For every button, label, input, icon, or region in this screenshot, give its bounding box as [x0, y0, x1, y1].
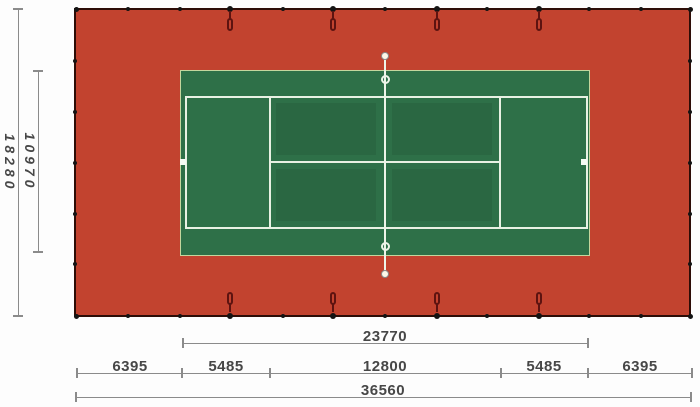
fence-post: [688, 161, 692, 165]
fence-post: [688, 59, 692, 63]
fence-post: [688, 314, 693, 319]
dimension-label-total-length: 36560: [361, 383, 405, 398]
dimension-label-court-length: 23770: [363, 329, 407, 344]
dim-tick: [13, 315, 23, 317]
dimension-line-total-height: [18, 9, 19, 317]
center-mark-right: [581, 159, 587, 165]
fence-tie-stem: [538, 304, 540, 312]
fence-tie-stem: [436, 304, 438, 312]
dim-tick: [690, 392, 692, 402]
fence-post: [281, 314, 285, 318]
fence-tie-stem: [538, 11, 540, 19]
dim-tick: [269, 368, 271, 378]
dimension-label-backcourt-right: 5485: [526, 359, 561, 374]
fence-post: [74, 314, 79, 319]
fence-tie-ring: [330, 18, 336, 31]
center-mark-left: [180, 159, 186, 165]
fence-post: [330, 313, 336, 319]
tennis-court-plan: 18280 10970 23770 6395 5485 12800 5485 6…: [0, 0, 700, 407]
net-post-bottom: [381, 270, 389, 278]
dimension-label-total-height: 18280: [3, 134, 17, 193]
fence-post: [281, 7, 285, 11]
dimension-line-court-height: [38, 71, 39, 253]
fence-post: [688, 262, 692, 266]
dim-tick: [181, 368, 183, 378]
net-anchor-bottom: [381, 242, 390, 251]
fence-post: [434, 313, 440, 319]
fence-post: [227, 313, 233, 319]
fence-post: [126, 314, 130, 318]
fence-tie-stem: [332, 11, 334, 19]
fence-post: [587, 314, 591, 318]
dim-tick: [75, 392, 77, 402]
fence-post: [73, 161, 77, 165]
fence-post: [178, 7, 182, 11]
fence-post: [73, 212, 77, 216]
dimension-label-service-courts: 12800: [363, 359, 407, 374]
dim-tick: [33, 70, 43, 72]
fence-post: [639, 314, 643, 318]
fence-tie-stem: [229, 11, 231, 19]
dim-tick: [13, 8, 23, 10]
fence-post: [383, 314, 387, 318]
fence-tie-stem: [229, 304, 231, 312]
dim-tick: [587, 338, 589, 348]
fence-post: [587, 7, 591, 11]
fence-tie-stem: [436, 11, 438, 19]
dimension-label-court-height: 10970: [23, 133, 37, 192]
fence-post: [688, 212, 692, 216]
fence-post: [688, 7, 693, 12]
fence-post: [74, 7, 79, 12]
fence-post: [73, 262, 77, 266]
fence-post: [485, 314, 489, 318]
dimension-label-backcourt-left: 5485: [208, 359, 243, 374]
fence-tie-stem: [332, 304, 334, 312]
dim-tick: [33, 251, 43, 253]
fence-post: [536, 313, 542, 319]
dim-tick: [76, 368, 78, 378]
fence-post: [383, 7, 387, 11]
dim-tick: [182, 338, 184, 348]
dim-tick: [500, 368, 502, 378]
fence-post: [639, 7, 643, 11]
dim-tick: [691, 368, 693, 378]
fence-tie-ring: [227, 18, 233, 31]
dimension-label-margin-right: 6395: [622, 359, 657, 374]
net-post-top: [381, 52, 389, 60]
fence-tie-ring: [434, 18, 440, 31]
net-anchor-top: [381, 75, 390, 84]
fence-tie-ring: [536, 18, 542, 31]
fence-post: [73, 110, 77, 114]
fence-post: [178, 314, 182, 318]
fence-post: [688, 110, 692, 114]
fence-post: [485, 7, 489, 11]
dim-tick: [587, 368, 589, 378]
fence-post: [126, 7, 130, 11]
fence-post: [73, 59, 77, 63]
dimension-label-margin-left: 6395: [112, 359, 147, 374]
